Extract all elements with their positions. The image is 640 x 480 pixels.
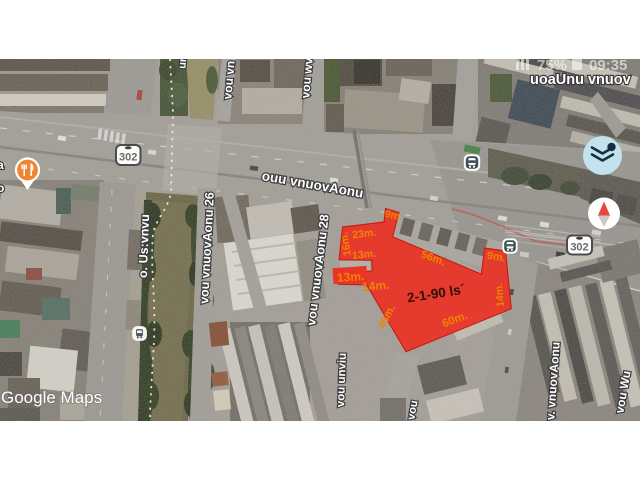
svg-text:o: o [0, 181, 4, 195]
svg-text:302: 302 [119, 152, 137, 164]
svg-text:13m.: 13m. [352, 248, 377, 262]
svg-text:14m.: 14m. [493, 282, 507, 307]
svg-text:a: a [0, 158, 4, 172]
svg-text:13m.: 13m. [337, 269, 365, 285]
svg-text:14m.: 14m. [361, 278, 389, 294]
svg-text:Google Maps: Google Maps [1, 388, 102, 407]
svg-text:302: 302 [570, 242, 588, 254]
svg-text:uoaUnu vnuov: uoaUnu vnuov [530, 72, 631, 88]
svg-text:vou unviu: vou unviu [335, 353, 349, 408]
svg-text:o. Us:vnvu: o. Us:vnvu [136, 214, 152, 278]
